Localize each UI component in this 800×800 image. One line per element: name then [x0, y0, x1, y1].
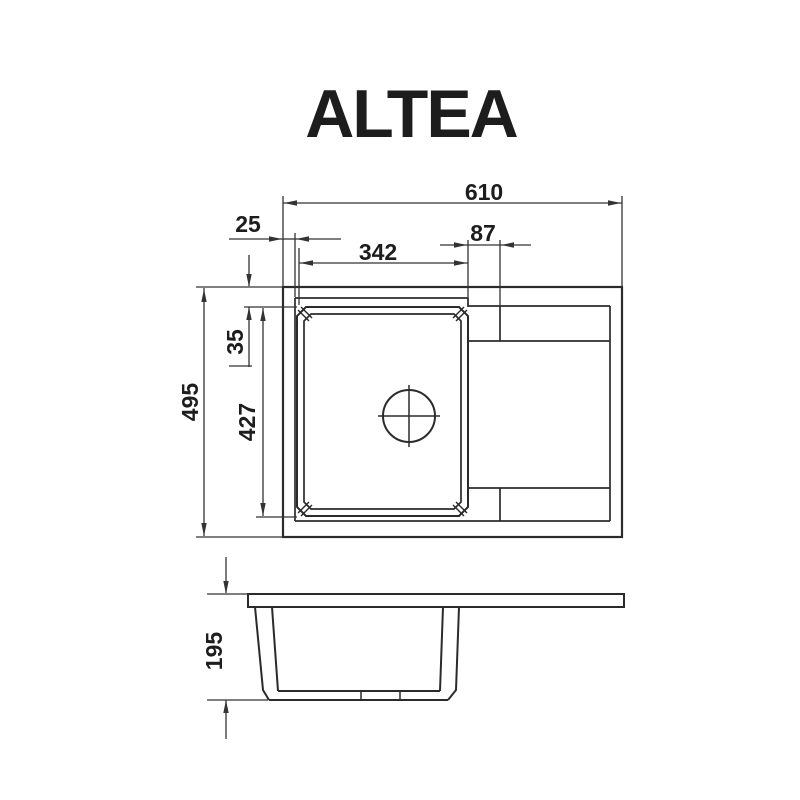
dim-label-overall_width: 610: [465, 179, 503, 205]
bowl-corner-mitre: [456, 502, 467, 513]
dim-label-left_rim: 25: [235, 211, 261, 237]
arrow-35-top: [246, 274, 251, 287]
arrow-25-left: [269, 236, 282, 241]
arrow-610-right: [608, 200, 621, 205]
arrow-195-top: [223, 581, 228, 594]
bowl-corner-mitre: [453, 505, 464, 516]
sink-technical-drawing: 610253428749535427195: [0, 0, 800, 800]
dim-label-bowl_length: 427: [234, 403, 260, 441]
arrow-195-bottom: [223, 700, 228, 713]
side-left-wall-inner: [272, 607, 278, 691]
arrow-342-right: [454, 260, 467, 265]
arrow-342-left: [300, 260, 313, 265]
bowl-corner-mitre: [453, 307, 464, 318]
dim-label-bowl_top_inset: 35: [222, 329, 248, 355]
side-right-wall-inner: [440, 607, 443, 691]
arrow-87-left: [454, 242, 467, 247]
arrow-35-bottom: [246, 307, 251, 320]
arrow-427-bottom: [260, 503, 265, 516]
arrow-610-left: [284, 200, 297, 205]
worktop-slab-side: [248, 594, 624, 607]
dim-label-overall_depth: 495: [177, 383, 203, 422]
dim-label-height: 195: [201, 632, 227, 671]
drawing-page: ALTEA 610253428749535427195: [0, 0, 800, 800]
dim-label-bowl_width: 342: [359, 239, 397, 265]
bowl-corner-mitre: [301, 505, 312, 516]
arrow-495-top: [201, 289, 206, 302]
side-left-wall-outer: [255, 607, 269, 700]
bowl-corner-mitre: [301, 307, 312, 318]
sink-outline: [283, 287, 622, 537]
bowl-corner-mitre: [298, 310, 309, 321]
bowl-corner-mitre: [456, 310, 467, 321]
arrow-87-right: [501, 242, 514, 247]
side-right-wall-outer: [448, 607, 459, 700]
dim-label-drain_offset: 87: [470, 220, 496, 246]
bowl-corner-mitre: [298, 502, 309, 513]
arrow-427-top: [260, 308, 265, 321]
arrow-495-bottom: [201, 523, 206, 536]
arrow-25-right: [296, 236, 309, 241]
